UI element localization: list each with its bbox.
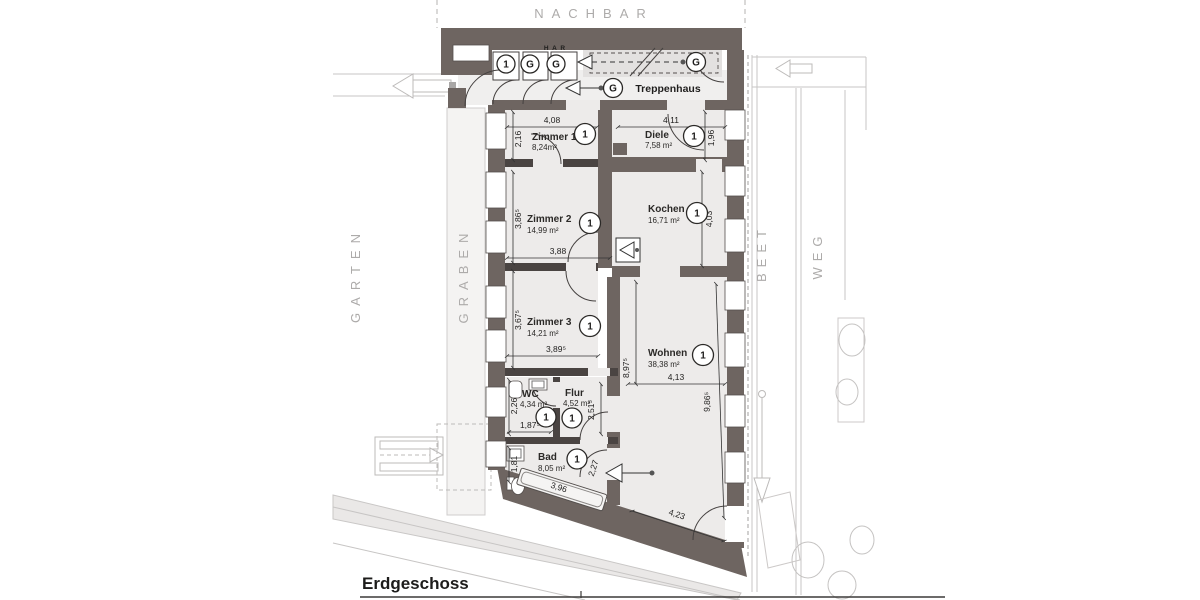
marker-wohnen: 1 [693,345,714,366]
bad-name: Bad [538,452,557,463]
marker-zimmer3: 1 [580,316,601,337]
page-title: Erdgeschoss [362,574,469,593]
zimmer1-name: Zimmer 1 [532,132,577,143]
dim-zimmer3-depth: 3,67⁵ [513,310,523,330]
marker-flur: 1 [562,408,582,428]
wohnen-area: 38,38 m² [648,360,680,369]
dim-zimmer3-width: 3,89⁵ [546,344,566,354]
floor-plan-page: NACHBAR GARTEN GRABEN BEET WEG [0,0,1200,600]
diele-area: 7,58 m² [645,141,672,150]
diele-name: Diele [645,130,669,141]
marker-kochen: 1 [687,203,708,224]
marker-bad: 1 [567,449,587,469]
dim-zimmer2-depth: 3,86⁵ [513,209,523,229]
dim-zimmer1-width: 4,08 [544,115,561,125]
zimmer1-area: 8,24m² [532,143,557,152]
path-label: WEG [810,230,825,279]
dim-diele-width: 4,11 [663,115,679,125]
svg-text:1: 1 [574,455,580,466]
svg-text:1: 1 [694,209,700,220]
svg-text:G: G [609,84,617,95]
bad-area: 8,05 m² [538,464,565,473]
zimmer2-name: Zimmer 2 [527,214,572,225]
neighbor-label: NACHBAR [534,6,654,21]
marker-stair-door: G [687,53,706,72]
svg-text:G: G [526,60,534,71]
wc-name: WC [522,389,539,400]
kochen-name: Kochen [648,204,685,215]
stairwell-label: Treppenhaus [635,83,701,95]
svg-text:1: 1 [582,130,588,141]
svg-text:1: 1 [587,322,593,333]
bed-label: BEET [754,224,769,282]
marker-closet-1: 1 [497,55,515,73]
svg-text:G: G [552,60,560,71]
dim-diele-depth: 1,96 [706,129,716,146]
har-label: H A R [544,45,566,52]
marker-closet-2: G [521,55,539,73]
wohnen-name: Wohnen [648,348,687,359]
svg-text:1: 1 [569,414,575,425]
svg-text:1: 1 [700,351,706,362]
flur-name: Flur [565,388,584,399]
marker-zimmer2: 1 [580,213,601,234]
marker-wc: 1 [536,407,556,427]
zimmer2-area: 14,99 m² [527,226,559,235]
dim-wohnen-depth-right: 9,86⁵ [702,392,713,412]
sliding-door-icon [616,238,640,262]
svg-text:1: 1 [587,219,593,230]
right-path-arrow-icon [776,60,812,77]
svg-text:1: 1 [691,132,697,143]
kochen-area: 16,71 m² [648,216,680,225]
zimmer3-name: Zimmer 3 [527,317,572,328]
svg-text:1: 1 [503,60,509,71]
down-arrow-icon [754,391,770,503]
dim-zimmer2-width: 3,88 [550,246,567,256]
wc-toilet [509,381,522,398]
flur-area: 4,52 m² [563,399,590,408]
dim-wohnen-depth-inner: 8,97⁵ [621,358,631,378]
marker-hall: G [604,79,623,98]
entrance-arrow-icon [393,74,456,98]
dim-zimmer1-depth: 2,16 [513,130,523,147]
dim-wc-depth: 2,26 [509,397,519,414]
garden-label: GARTEN [348,227,363,323]
marker-closet-3: G [547,55,565,73]
garden-structure [838,318,864,422]
zimmer3-area: 14,21 m² [527,329,559,338]
marker-diele: 1 [684,126,705,147]
svg-text:G: G [692,58,700,69]
dim-bad-depth: 1,81 [509,455,519,472]
svg-text:1: 1 [543,413,549,424]
marker-zimmer1: 1 [575,124,596,145]
dim-wohnen-width: 4,13 [668,372,685,382]
trench-label: GRABEN [456,227,471,324]
floor-plan-drawing: NACHBAR GARTEN GRABEN BEET WEG [0,0,1200,600]
